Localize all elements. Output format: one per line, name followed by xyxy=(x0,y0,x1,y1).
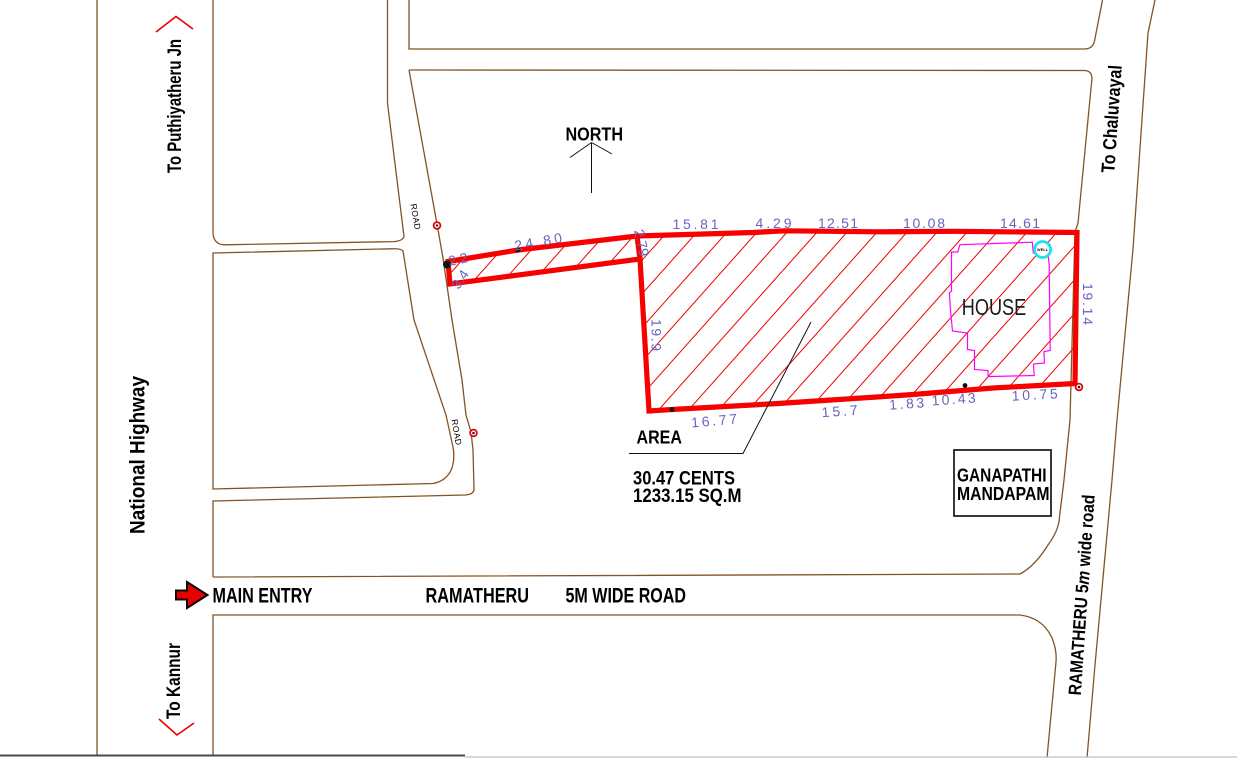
svg-text:19.14: 19.14 xyxy=(1080,283,1096,325)
svg-text:1.83: 1.83 xyxy=(889,394,925,412)
svg-text:2.2: 2.2 xyxy=(447,249,470,269)
svg-text:MAIN ENTRY: MAIN ENTRY xyxy=(213,584,313,608)
svg-text:NORTH: NORTH xyxy=(566,125,624,145)
svg-text:14.61: 14.61 xyxy=(1000,215,1040,231)
svg-text:12.51: 12.51 xyxy=(818,215,858,231)
svg-text:WELL: WELL xyxy=(1037,247,1049,252)
svg-text:To Puthiyatheru Jn: To Puthiyatheru Jn xyxy=(165,39,186,173)
svg-text:15.81: 15.81 xyxy=(673,216,719,232)
svg-text:RAMATHERU: RAMATHERU xyxy=(426,584,530,608)
svg-text:16.77: 16.77 xyxy=(690,411,737,431)
svg-text:To Chaluvayal: To Chaluvayal xyxy=(1098,64,1126,173)
svg-text:GANAPATHI: GANAPATHI xyxy=(957,466,1047,486)
svg-text:To Kannur: To Kannur xyxy=(164,643,185,719)
svg-text:5M WIDE ROAD: 5M WIDE ROAD xyxy=(566,584,687,608)
svg-text:MANDAPAM: MANDAPAM xyxy=(957,484,1050,504)
svg-text:10.08: 10.08 xyxy=(903,215,945,231)
svg-text:19.9: 19.9 xyxy=(648,319,664,351)
svg-text:10.75: 10.75 xyxy=(1011,385,1058,403)
svg-text:2.79: 2.79 xyxy=(631,228,652,258)
svg-text:ROAD: ROAD xyxy=(409,203,423,231)
svg-text:AREA: AREA xyxy=(637,428,683,448)
svg-text:15.7: 15.7 xyxy=(821,402,858,420)
svg-text:National Highway: National Highway xyxy=(126,376,150,534)
svg-text:1233.15 SQ.M: 1233.15 SQ.M xyxy=(633,485,742,507)
svg-text:RAMATHERU 5m wide road: RAMATHERU 5m wide road xyxy=(1065,494,1099,696)
svg-text:HOUSE: HOUSE xyxy=(962,294,1027,320)
svg-text:10.43: 10.43 xyxy=(931,389,976,408)
svg-text:4.29: 4.29 xyxy=(756,215,792,231)
svg-text:3.4: 3.4 xyxy=(448,267,472,292)
